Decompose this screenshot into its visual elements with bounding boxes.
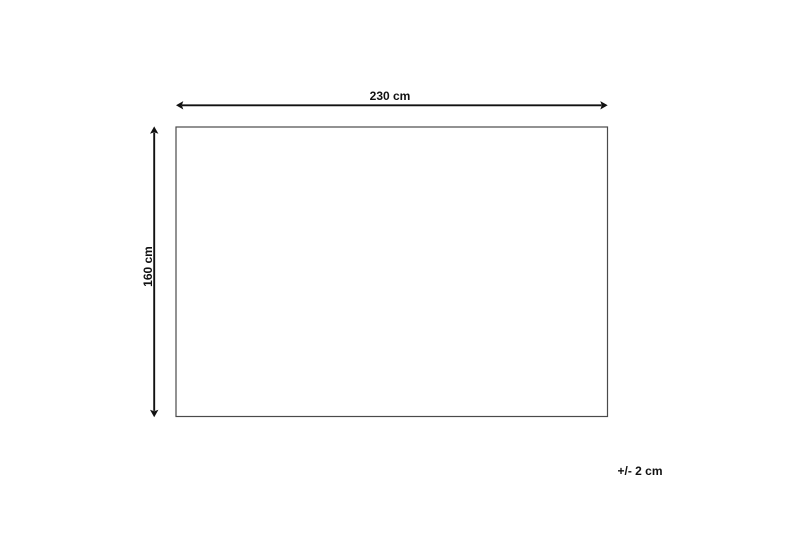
svg-text:160 cm: 160 cm <box>141 246 155 287</box>
svg-text:230 cm: 230 cm <box>370 89 411 103</box>
svg-text:+/- 2 cm: +/- 2 cm <box>617 464 662 478</box>
